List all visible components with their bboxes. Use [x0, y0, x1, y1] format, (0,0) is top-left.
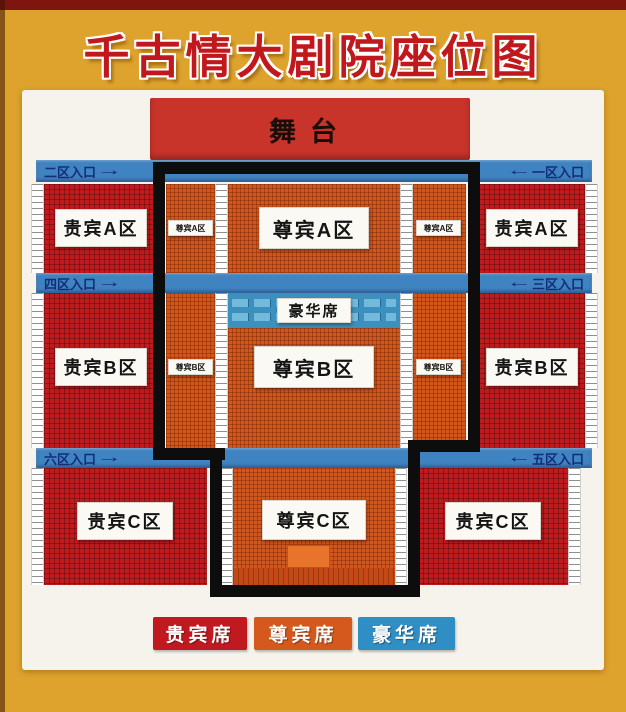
label-vip-c-right: 贵宾C区 — [445, 502, 541, 540]
entrance-zone3-label: 三区入口 — [532, 274, 584, 293]
entrance-zone3: ← 三区入口 — [511, 274, 584, 293]
premium-outline-bottom — [210, 585, 420, 597]
premium-outline-left-upper — [153, 162, 165, 460]
label-premium-a-center: 尊宾A区 — [259, 207, 369, 249]
right-arrow-icon: → — [96, 274, 122, 292]
entrance-zone1-label: 一区入口 — [532, 162, 584, 181]
label-premium-b-right-col: 尊宾B区 — [416, 359, 461, 375]
right-arrow-icon: → — [96, 162, 122, 180]
seating-map-panel: 舞台 二区入口 → ← 一区入口 四区入口 → — [22, 90, 604, 670]
row-number-ticks — [215, 293, 228, 448]
row-number-ticks — [400, 293, 413, 448]
row-number-ticks — [221, 468, 233, 585]
entrance-zone5-label: 五区入口 — [532, 449, 584, 468]
label-premium-c-center: 尊宾C区 — [262, 500, 366, 540]
entrance-zone6: 六区入口 → — [44, 449, 117, 468]
premium-outline-right-lower — [408, 440, 420, 597]
legend-deluxe-badge: 豪华席 — [358, 617, 455, 650]
label-vip-a-right: 贵宾A区 — [486, 209, 578, 247]
label-deluxe: 豪华席 — [277, 298, 351, 323]
seating-chart-poster: 千古情大剧院座位图 舞台 二区入口 → ← 一区入口 四区入口 — [0, 0, 626, 712]
entrance-zone6-label: 六区入口 — [44, 449, 96, 468]
left-arrow-icon: ← — [506, 274, 532, 292]
row-number-ticks — [400, 184, 413, 273]
left-edge-shadow — [0, 0, 5, 712]
page-title: 千古情大剧院座位图 — [0, 22, 626, 86]
label-premium-a-left-col: 尊宾A区 — [168, 220, 213, 236]
label-premium-b-left-col: 尊宾B区 — [168, 359, 213, 375]
row-number-ticks — [215, 184, 228, 273]
legend-vip-badge: 贵宾席 — [153, 617, 247, 650]
label-vip-c-left: 贵宾C区 — [77, 502, 173, 540]
row-number-ticks — [31, 293, 44, 448]
entrance-zone1: ← 一区入口 — [511, 162, 584, 181]
rear-seat-band — [233, 568, 395, 585]
left-arrow-icon: ← — [506, 449, 532, 467]
premium-outline-right-upper — [468, 162, 480, 452]
row-number-ticks — [568, 468, 581, 585]
label-premium-a-right-col: 尊宾A区 — [416, 220, 461, 236]
entrance-zone2-label: 二区入口 — [44, 162, 96, 181]
left-arrow-icon: ← — [506, 162, 532, 180]
entrance-zone4-label: 四区入口 — [44, 274, 96, 293]
label-vip-b-left: 贵宾B区 — [55, 348, 147, 386]
entrance-zone5: ← 五区入口 — [511, 449, 584, 468]
legend-premium-badge: 尊宾席 — [254, 617, 352, 650]
entrance-zone4: 四区入口 → — [44, 274, 117, 293]
premium-outline-left-lower — [210, 448, 222, 597]
label-premium-b-center: 尊宾B区 — [254, 346, 374, 388]
aisle-strip-2: 四区入口 → ← 三区入口 — [36, 273, 592, 293]
control-booth — [287, 545, 330, 568]
premium-outline-top — [153, 162, 480, 174]
stage: 舞台 — [150, 98, 470, 160]
row-number-ticks — [395, 468, 407, 585]
row-number-ticks — [31, 184, 44, 273]
row-number-ticks — [31, 468, 44, 585]
row-number-ticks — [585, 293, 598, 448]
label-vip-b-right: 贵宾B区 — [486, 348, 578, 386]
right-arrow-icon: → — [96, 449, 122, 467]
label-vip-a-left: 贵宾A区 — [55, 209, 147, 247]
aisle-strip-3: 六区入口 → ← 五区入口 — [36, 448, 592, 468]
top-maroon-bar — [0, 0, 626, 10]
row-number-ticks — [585, 184, 598, 273]
entrance-zone2: 二区入口 → — [44, 162, 117, 181]
